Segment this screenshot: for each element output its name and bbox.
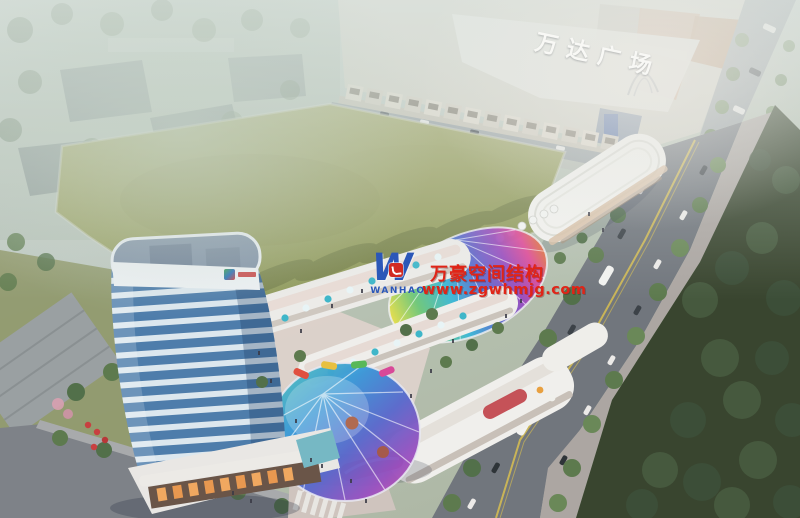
wanhao-logo: W WANHAO	[372, 252, 424, 298]
wanhao-badge-icon	[389, 263, 403, 277]
aerial-rendering: 万达广场 W WANHAO 万豪空间结构 www.zgwhmjg.com	[0, 0, 800, 518]
watermark-url: www.zgwhmjg.com	[422, 282, 586, 298]
wanhao-brand-text: WANHAO	[370, 286, 426, 296]
watermark: W WANHAO 万豪空间结构 www.zgwhmjg.com	[368, 250, 548, 310]
